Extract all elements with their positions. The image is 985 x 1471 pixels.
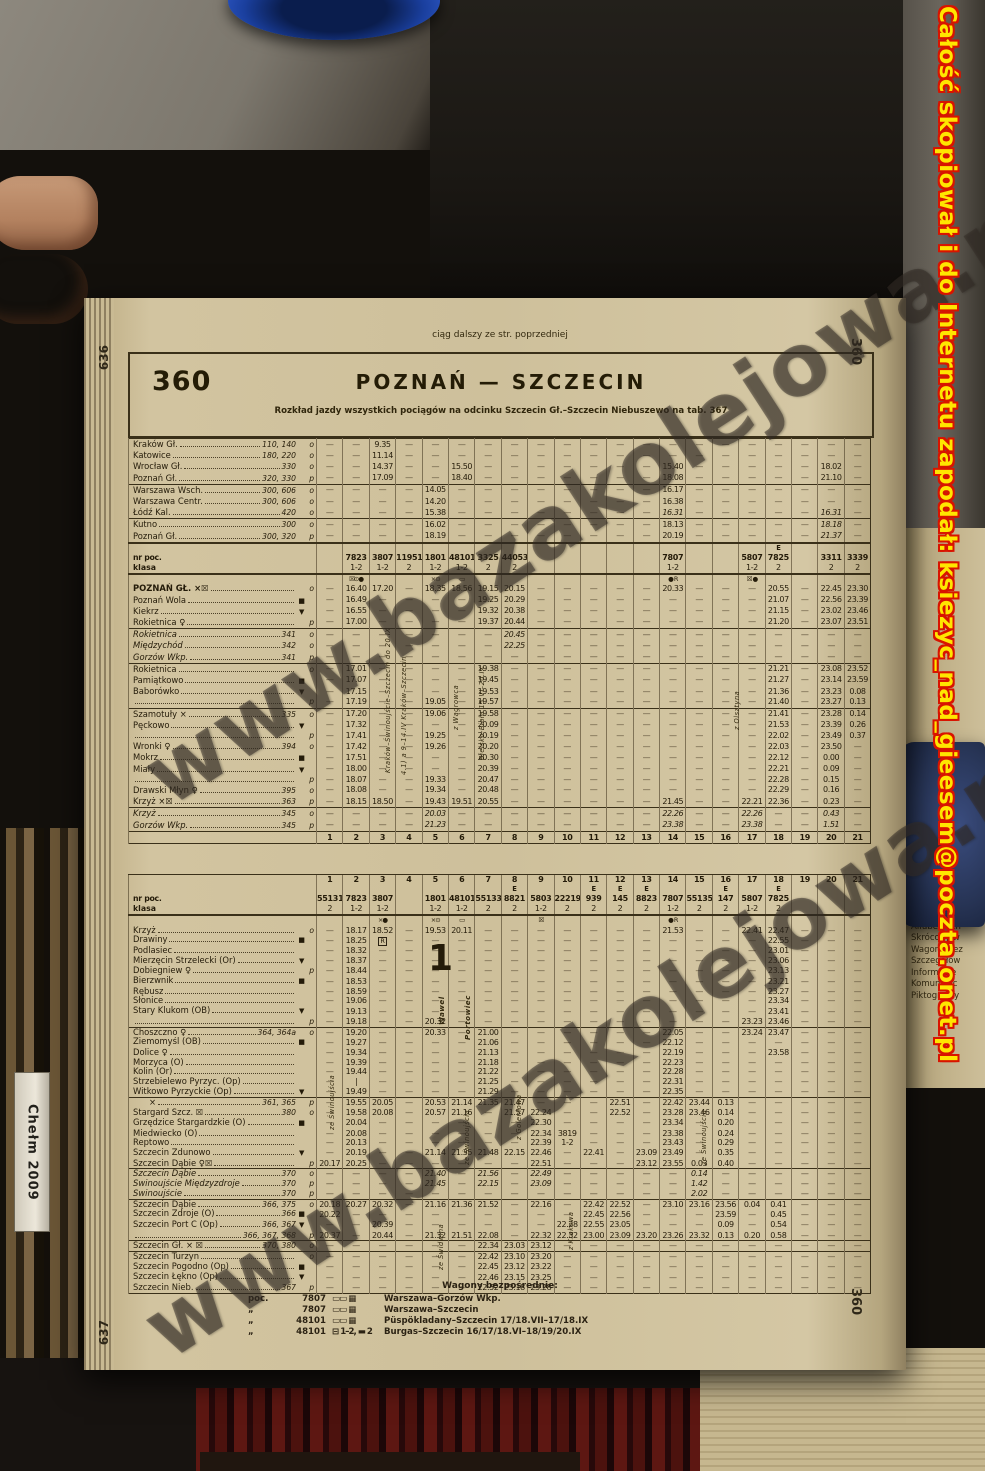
coach-icons: ▭▭ ▦ bbox=[332, 1294, 384, 1305]
station-row: Gorzów Wkp.345p————21.23————————23.38——2… bbox=[129, 820, 871, 832]
time-cell: — bbox=[607, 720, 633, 731]
time-cell: — bbox=[422, 1159, 448, 1169]
through-coaches-title: Wagony bezpośrednie: bbox=[330, 1281, 670, 1291]
time-cell: — bbox=[580, 987, 606, 997]
time-cell: — bbox=[607, 1006, 633, 1017]
time-cell: — bbox=[448, 629, 474, 641]
time-cell: — bbox=[633, 675, 659, 686]
station-cell: Szczecin Dąbie366, 375o bbox=[129, 1199, 317, 1209]
time-cell: — bbox=[422, 1087, 448, 1098]
header-row: nr poc.782338071195118014810133254405378… bbox=[129, 552, 871, 563]
big-numeral: 1 bbox=[428, 938, 453, 979]
time-cell: — bbox=[475, 935, 501, 946]
time-cell: — bbox=[317, 741, 343, 752]
time-cell: 21.35 bbox=[475, 1098, 501, 1108]
time-cell: — bbox=[844, 1067, 870, 1077]
time-cell: R bbox=[369, 935, 395, 946]
time-cell: 23.46 bbox=[844, 606, 870, 617]
time-cell: — bbox=[739, 1189, 765, 1199]
time-cell: — bbox=[396, 1067, 422, 1077]
time-cell: — bbox=[528, 519, 554, 531]
time-cell: — bbox=[554, 606, 580, 617]
time-cell: — bbox=[317, 484, 343, 496]
time-cell: — bbox=[528, 617, 554, 629]
column-number: 7 bbox=[475, 875, 501, 885]
station-row: POZNAŃ GŁ. ×☒o—16.4017.20—18.3518.5619.1… bbox=[129, 583, 871, 594]
column-number: 5 bbox=[422, 831, 448, 843]
time-cell: — bbox=[844, 507, 870, 519]
time-cell: — bbox=[475, 946, 501, 956]
station-row: Stargard Szcz. ☒380o—19.5820.08—20.5721.… bbox=[129, 1108, 871, 1118]
time-cell: — bbox=[844, 640, 870, 651]
time-cell: 0.09 bbox=[818, 764, 844, 775]
time-cell: — bbox=[792, 507, 818, 519]
dot-leader bbox=[214, 1165, 294, 1166]
column-number: 11 bbox=[580, 831, 606, 843]
time-cell: — bbox=[739, 1241, 765, 1252]
time-cell: — bbox=[528, 926, 554, 936]
time-cell: — bbox=[396, 1098, 422, 1108]
header-cell bbox=[475, 574, 501, 584]
time-cell: — bbox=[686, 966, 712, 976]
header-label bbox=[129, 875, 317, 885]
time-cell: — bbox=[528, 935, 554, 946]
time-cell: — bbox=[818, 987, 844, 997]
time-cell: — bbox=[633, 686, 659, 697]
station-cell: Stargard Szcz. ☒380o bbox=[129, 1108, 317, 1118]
continuation-note: ciąg dalszy ze str. poprzedniej bbox=[310, 330, 690, 340]
time-cell: — bbox=[739, 1159, 765, 1169]
time-cell: — bbox=[475, 966, 501, 976]
time-cell: — bbox=[686, 976, 712, 987]
station-row: Bierzwnik■—18.53———————————————23.21——— bbox=[129, 976, 871, 987]
time-cell: — bbox=[844, 1077, 870, 1087]
header-cell: 48101 bbox=[448, 552, 474, 563]
time-cell: — bbox=[660, 996, 686, 1006]
time-cell: — bbox=[317, 1220, 343, 1231]
time-cell: — bbox=[607, 583, 633, 594]
time-cell: — bbox=[580, 697, 606, 708]
time-cell: — bbox=[739, 461, 765, 472]
header-cell: ● R bbox=[660, 574, 686, 584]
time-cell: — bbox=[792, 1087, 818, 1098]
time-cell: — bbox=[607, 595, 633, 606]
time-cell: — bbox=[501, 1209, 527, 1220]
time-cell: 18.40 bbox=[448, 473, 474, 485]
time-cell: — bbox=[739, 1220, 765, 1231]
header-cell bbox=[475, 885, 501, 895]
column-number: 12 bbox=[607, 831, 633, 843]
time-cell: — bbox=[528, 820, 554, 832]
time-cell: — bbox=[686, 473, 712, 485]
header-cell: ☒⊙● bbox=[343, 574, 369, 584]
time-cell: — bbox=[818, 946, 844, 956]
time-cell: — bbox=[580, 1017, 606, 1027]
column-number: 15 bbox=[686, 875, 712, 885]
time-cell: — bbox=[712, 752, 738, 763]
time-cell: — bbox=[712, 996, 738, 1006]
header-cell bbox=[343, 915, 369, 926]
timetable: 123456789101112131415161718192021EEEEEEn… bbox=[128, 874, 871, 1294]
time-cell: — bbox=[396, 987, 422, 997]
time-cell: — bbox=[528, 1017, 554, 1027]
time-cell: 0.29 bbox=[712, 1138, 738, 1148]
time-cell: — bbox=[792, 439, 818, 451]
column-number: 18 bbox=[765, 875, 791, 885]
time-cell: — bbox=[844, 1138, 870, 1148]
time-cell: — bbox=[844, 976, 870, 987]
time-cell: — bbox=[660, 741, 686, 752]
time-cell: 20.15 bbox=[501, 583, 527, 594]
time-cell: — bbox=[818, 956, 844, 967]
time-cell: — bbox=[554, 617, 580, 629]
time-cell: 20.29 bbox=[501, 595, 527, 606]
time-cell: — bbox=[528, 946, 554, 956]
time-cell: 14.37 bbox=[369, 461, 395, 472]
time-cell: — bbox=[792, 606, 818, 617]
route-annotation: z Krakowa bbox=[567, 1165, 575, 1250]
time-cell: — bbox=[792, 595, 818, 606]
time-cell: — bbox=[792, 1199, 818, 1209]
time-cell: — bbox=[554, 507, 580, 519]
time-cell: 23.28 bbox=[660, 1108, 686, 1118]
time-cell: 19.43 bbox=[422, 796, 448, 808]
time-cell: — bbox=[501, 1169, 527, 1179]
time-cell: — bbox=[792, 946, 818, 956]
header-cell bbox=[317, 563, 343, 574]
time-cell: — bbox=[448, 741, 474, 752]
time-cell: — bbox=[818, 1199, 844, 1209]
time-cell: 23.59 bbox=[712, 1209, 738, 1220]
header-cell: 1-2 bbox=[448, 563, 474, 574]
header-cell: 48101 bbox=[448, 894, 474, 904]
header-cell: 2 bbox=[501, 563, 527, 574]
time-cell: — bbox=[739, 1037, 765, 1048]
time-cell: 22.49 bbox=[528, 1169, 554, 1179]
time-cell: — bbox=[739, 697, 765, 708]
time-cell: — bbox=[607, 496, 633, 507]
header-cell bbox=[739, 885, 765, 895]
time-cell: — bbox=[765, 820, 791, 832]
time-cell: — bbox=[818, 1067, 844, 1077]
time-cell: — bbox=[633, 976, 659, 987]
time-cell: — bbox=[528, 1037, 554, 1048]
dark-book-edge bbox=[200, 1452, 580, 1471]
time-cell: — bbox=[580, 1058, 606, 1068]
time-cell: — bbox=[317, 987, 343, 997]
time-cell: — bbox=[396, 1231, 422, 1241]
time-cell: 23.09 bbox=[607, 1231, 633, 1241]
time-cell: — bbox=[844, 987, 870, 997]
time-cell: — bbox=[739, 966, 765, 976]
time-cell: — bbox=[660, 640, 686, 651]
time-cell: — bbox=[739, 741, 765, 752]
time-cell: — bbox=[554, 484, 580, 496]
dot-leader bbox=[201, 1258, 294, 1259]
time-cell: — bbox=[317, 966, 343, 976]
time-cell: — bbox=[844, 450, 870, 461]
time-cell: — bbox=[686, 1209, 712, 1220]
header-cell: 2 bbox=[765, 563, 791, 574]
time-cell: — bbox=[369, 1138, 395, 1148]
header-cell bbox=[554, 563, 580, 574]
header-cell: 145 bbox=[607, 894, 633, 904]
time-cell: — bbox=[501, 663, 527, 675]
station-cell: Morzyca (O) bbox=[129, 1058, 317, 1068]
station-cell: Ziemomyśl (OB)■ bbox=[129, 1037, 317, 1048]
time-cell: — bbox=[554, 808, 580, 820]
time-cell: — bbox=[554, 926, 580, 936]
time-cell: — bbox=[396, 1209, 422, 1220]
time-cell: — bbox=[765, 808, 791, 820]
time-cell: — bbox=[765, 1118, 791, 1129]
station-row: Poznań Gł.300, 320p————18.19————————20.1… bbox=[129, 531, 871, 543]
time-cell: 22.25 bbox=[501, 640, 527, 651]
time-cell: — bbox=[607, 976, 633, 987]
time-cell: — bbox=[580, 1098, 606, 1108]
station-cell: Drawiny■ bbox=[129, 935, 317, 946]
time-cell: — bbox=[448, 450, 474, 461]
time-cell: — bbox=[607, 686, 633, 697]
time-cell: — bbox=[818, 926, 844, 936]
time-cell: — bbox=[317, 496, 343, 507]
time-cell: 0.37 bbox=[844, 731, 870, 741]
time-cell: — bbox=[686, 1048, 712, 1058]
column-number: 10 bbox=[554, 831, 580, 843]
time-cell: — bbox=[554, 708, 580, 720]
time-cell: 23.38 bbox=[739, 820, 765, 832]
time-cell: — bbox=[607, 1048, 633, 1058]
time-cell: — bbox=[818, 439, 844, 451]
time-cell: 23.49 bbox=[818, 731, 844, 741]
time-cell: — bbox=[686, 507, 712, 519]
time-cell: — bbox=[844, 1098, 870, 1108]
header-cell: ×● bbox=[369, 915, 395, 926]
time-cell: — bbox=[633, 926, 659, 936]
dot-leader bbox=[179, 671, 294, 672]
time-cell: — bbox=[422, 606, 448, 617]
time-cell: — bbox=[554, 1087, 580, 1098]
station-symbol-icon: ▼ bbox=[296, 1088, 307, 1098]
dot-leader bbox=[205, 1114, 279, 1115]
time-cell: — bbox=[792, 785, 818, 796]
time-cell: — bbox=[554, 1017, 580, 1027]
time-cell: — bbox=[633, 496, 659, 507]
station-row: Rokietnicao—17.01————19.38——————————21.2… bbox=[129, 663, 871, 675]
time-cell: — bbox=[792, 708, 818, 720]
time-cell: — bbox=[739, 1077, 765, 1087]
time-cell: — bbox=[396, 1108, 422, 1118]
dot-leader bbox=[187, 624, 294, 625]
time-cell: — bbox=[792, 473, 818, 485]
dot-leader bbox=[175, 982, 294, 983]
station-cell: Kraków Gł.110, 140o bbox=[129, 439, 317, 451]
station-cell: Grzędzice Stargardzkie (O)■ bbox=[129, 1118, 317, 1129]
time-cell: — bbox=[686, 731, 712, 741]
column-number: 17 bbox=[739, 831, 765, 843]
dot-leader bbox=[196, 1289, 280, 1290]
time-cell: — bbox=[792, 1241, 818, 1252]
time-cell: — bbox=[422, 663, 448, 675]
time-cell: 16.55 bbox=[343, 606, 369, 617]
time-cell: 19.55 bbox=[343, 1098, 369, 1108]
time-cell: — bbox=[554, 775, 580, 785]
header-cell bbox=[580, 915, 606, 926]
header-cell bbox=[712, 552, 738, 563]
time-cell: — bbox=[844, 496, 870, 507]
time-cell: — bbox=[607, 935, 633, 946]
station-cell: Szczecin Port C (Op)366, 367▼ bbox=[129, 1220, 317, 1231]
time-cell: — bbox=[607, 1077, 633, 1087]
time-cell: — bbox=[607, 617, 633, 629]
time-cell: — bbox=[317, 946, 343, 956]
time-cell: — bbox=[712, 966, 738, 976]
time-cell: 23.39 bbox=[818, 720, 844, 731]
time-cell: — bbox=[607, 1159, 633, 1169]
time-cell: — bbox=[739, 595, 765, 606]
time-cell: — bbox=[554, 652, 580, 664]
time-cell: — bbox=[739, 996, 765, 1006]
time-cell: — bbox=[792, 1098, 818, 1108]
time-cell: — bbox=[528, 966, 554, 976]
time-cell: — bbox=[633, 987, 659, 997]
time-cell: — bbox=[660, 450, 686, 461]
time-cell: — bbox=[739, 617, 765, 629]
dot-leader bbox=[188, 602, 294, 603]
time-cell: — bbox=[765, 1252, 791, 1262]
time-cell: — bbox=[660, 1189, 686, 1199]
time-cell: 23.09 bbox=[633, 1148, 659, 1159]
time-cell: — bbox=[844, 1048, 870, 1058]
station-cell: Świnoujście Międzyzdroje370p bbox=[129, 1179, 317, 1189]
time-cell: 21.10 bbox=[818, 473, 844, 485]
time-cell: — bbox=[343, 461, 369, 472]
station-cell: Choszczno ♀364, 364ao bbox=[129, 1027, 317, 1037]
time-cell: — bbox=[317, 785, 343, 796]
time-cell: 19.06 bbox=[422, 708, 448, 720]
time-cell: — bbox=[580, 507, 606, 519]
time-cell: — bbox=[317, 439, 343, 451]
header-label: nr poc. bbox=[129, 552, 317, 563]
time-cell: — bbox=[475, 1108, 501, 1118]
time-cell: — bbox=[369, 1209, 395, 1220]
time-cell: — bbox=[396, 473, 422, 485]
time-cell: — bbox=[607, 1129, 633, 1139]
time-cell: — bbox=[317, 731, 343, 741]
time-cell: — bbox=[343, 1179, 369, 1189]
time-cell: — bbox=[448, 764, 474, 775]
station-cell: Katowice180, 220o bbox=[129, 450, 317, 461]
dot-leader bbox=[205, 1247, 260, 1248]
time-cell: — bbox=[660, 617, 686, 629]
time-cell: — bbox=[660, 720, 686, 731]
station-symbol-icon: ▼ bbox=[296, 957, 307, 967]
time-cell: — bbox=[765, 1283, 791, 1293]
time-cell: — bbox=[818, 1098, 844, 1108]
time-cell: 18.02 bbox=[818, 461, 844, 472]
time-cell: 16.31 bbox=[660, 507, 686, 519]
column-number: 8 bbox=[501, 875, 527, 885]
time-cell: — bbox=[369, 808, 395, 820]
time-cell: — bbox=[792, 764, 818, 775]
time-cell: 20.38 bbox=[501, 606, 527, 617]
time-cell: — bbox=[501, 1179, 527, 1189]
time-cell: 18.44 bbox=[343, 966, 369, 976]
time-cell: 23.26 bbox=[660, 1231, 686, 1241]
time-cell: 23.41 bbox=[765, 1006, 791, 1017]
time-cell: — bbox=[475, 439, 501, 451]
station-cell: Krzyż345o bbox=[129, 808, 317, 820]
time-cell: — bbox=[792, 1189, 818, 1199]
station-row: Poznań Wola■—16.49————19.2520.29————————… bbox=[129, 595, 871, 606]
time-cell: — bbox=[475, 820, 501, 832]
time-cell: 22.51 bbox=[528, 1159, 554, 1169]
time-cell: — bbox=[396, 484, 422, 496]
time-cell: — bbox=[501, 1027, 527, 1037]
time-cell: — bbox=[369, 1262, 395, 1273]
time-cell: — bbox=[422, 629, 448, 641]
time-cell: — bbox=[317, 519, 343, 531]
time-cell: 22.45 bbox=[818, 583, 844, 594]
time-cell: 17.32 bbox=[343, 720, 369, 731]
time-cell: — bbox=[765, 1037, 791, 1048]
time-cell: — bbox=[792, 996, 818, 1006]
time-cell: — bbox=[501, 439, 527, 451]
time-cell: — bbox=[633, 1129, 659, 1139]
time-cell: 21.53 bbox=[765, 720, 791, 731]
time-cell: 23.20 bbox=[633, 1231, 659, 1241]
header-cell bbox=[607, 543, 633, 552]
dot-leader bbox=[220, 1226, 260, 1227]
coach-icons: ▭▭ ▦ bbox=[332, 1305, 384, 1316]
time-cell: — bbox=[712, 1058, 738, 1068]
time-cell: — bbox=[686, 617, 712, 629]
time-cell: — bbox=[686, 595, 712, 606]
time-cell: — bbox=[528, 473, 554, 485]
time-cell: — bbox=[686, 663, 712, 675]
time-cell: — bbox=[369, 519, 395, 531]
time-cell: — bbox=[686, 785, 712, 796]
time-cell: 23.16 bbox=[686, 1199, 712, 1209]
time-cell: — bbox=[818, 996, 844, 1006]
time-cell: — bbox=[580, 1241, 606, 1252]
time-cell: — bbox=[422, 595, 448, 606]
header-label: klasa bbox=[129, 563, 317, 574]
time-cell: 21.20 bbox=[765, 617, 791, 629]
time-cell: — bbox=[317, 663, 343, 675]
time-cell: — bbox=[633, 1138, 659, 1148]
time-cell: — bbox=[501, 708, 527, 720]
dot-leader bbox=[181, 693, 294, 694]
header-cell: 1-2 bbox=[343, 904, 369, 915]
station-row: Dobiegniew ♀p—18.44———————————————23.13—… bbox=[129, 966, 871, 976]
time-cell: — bbox=[369, 496, 395, 507]
time-cell: — bbox=[607, 606, 633, 617]
time-cell: — bbox=[580, 1067, 606, 1077]
header-cell: 1-2 bbox=[422, 563, 448, 574]
time-cell: 21.41 bbox=[765, 708, 791, 720]
header-cell bbox=[317, 552, 343, 563]
time-cell: — bbox=[396, 1129, 422, 1139]
time-cell: 15.40 bbox=[660, 461, 686, 472]
time-cell: — bbox=[396, 1220, 422, 1231]
time-cell: 0.14 bbox=[844, 708, 870, 720]
time-cell: 16.40 bbox=[343, 583, 369, 594]
column-number: 7 bbox=[475, 831, 501, 843]
time-cell: — bbox=[712, 987, 738, 997]
time-cell: — bbox=[475, 507, 501, 519]
time-cell: — bbox=[792, 926, 818, 936]
